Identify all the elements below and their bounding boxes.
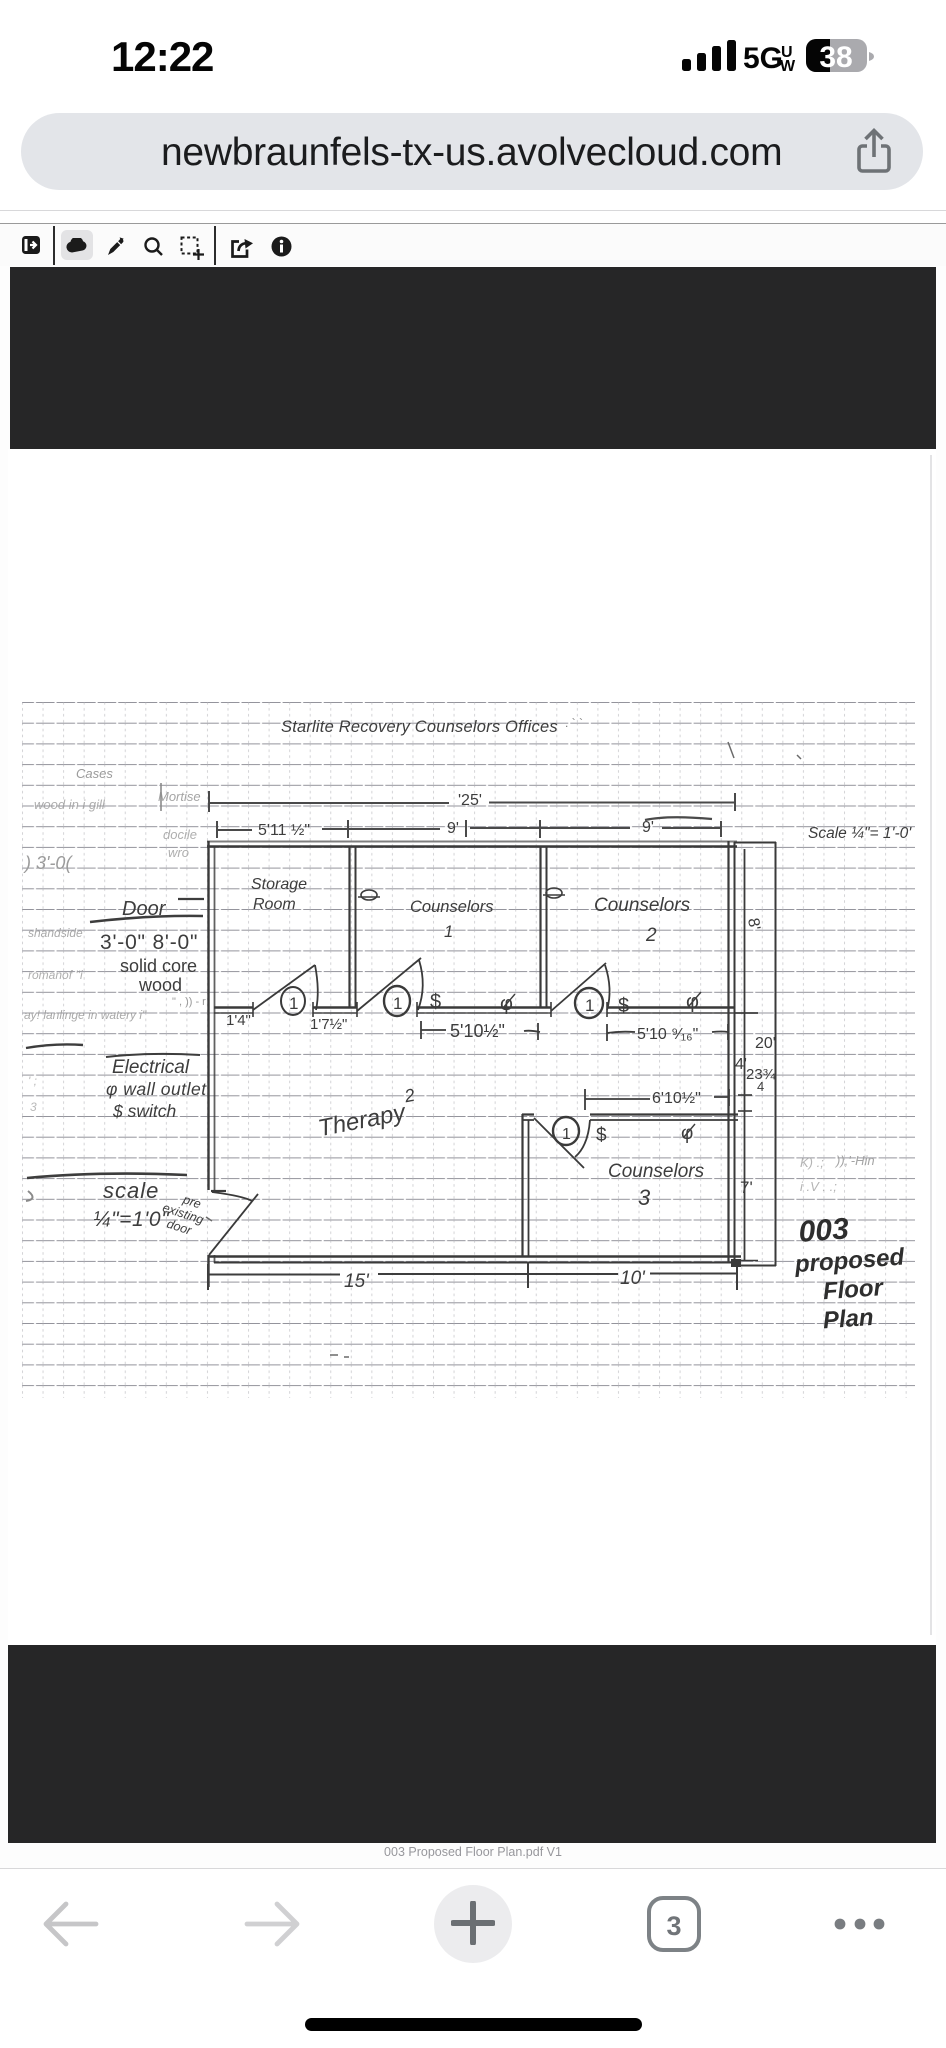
- svg-text:1'4": 1'4": [226, 1012, 251, 1029]
- svg-text:20': 20': [755, 1035, 776, 1052]
- svg-text:1: 1: [444, 923, 453, 941]
- svg-text:1: 1: [289, 994, 298, 1013]
- svg-text:$: $: [618, 995, 629, 1017]
- svg-text:5'10 ⁹⁄₁₆": 5'10 ⁹⁄₁₆": [637, 1026, 698, 1043]
- svg-text:5'11 ½": 5'11 ½": [258, 822, 310, 839]
- svg-text:Electrical: Electrical: [112, 1057, 190, 1078]
- svg-text:Counselors: Counselors: [608, 1161, 705, 1182]
- svg-text:" , )) - r: " , )) - r: [172, 996, 206, 1008]
- svg-text:38: 38: [819, 41, 852, 74]
- svg-text:Floor: Floor: [822, 1274, 885, 1305]
- svg-text:)),'-Hin: )),'-Hin: [834, 1153, 875, 1168]
- svg-text:$ switch: $ switch: [112, 1101, 176, 1121]
- svg-text:'25': '25': [458, 792, 482, 809]
- svg-text:$: $: [430, 991, 441, 1013]
- svg-text:φ wall outlet: φ wall outlet: [106, 1079, 207, 1099]
- svg-text:docile: docile: [163, 827, 197, 842]
- svg-text:2: 2: [645, 925, 657, 946]
- svg-text:i .V . .;: i .V . .;: [800, 1179, 837, 1194]
- svg-text:' ;: ' ;: [28, 1074, 37, 1088]
- svg-text:. ` `: . ` `: [565, 716, 583, 730]
- svg-text:Room: Room: [253, 896, 296, 913]
- svg-text:Counselors: Counselors: [594, 895, 691, 916]
- svg-text:3'-0" 8'-0": 3'-0" 8'-0": [100, 931, 198, 954]
- svg-text:15': 15': [344, 1271, 370, 1292]
- svg-text:6'10½": 6'10½": [652, 1090, 701, 1107]
- svg-text:$: $: [596, 1125, 607, 1146]
- svg-text:10': 10': [620, 1268, 646, 1289]
- svg-text:1: 1: [585, 996, 594, 1015]
- svg-text:ay! lanlinge in watery i": ay! lanlinge in watery i": [24, 1008, 147, 1022]
- svg-text:1'7½": 1'7½": [310, 1016, 347, 1033]
- svg-text:Mortise: Mortise: [158, 789, 201, 804]
- svg-text:Plan: Plan: [822, 1304, 874, 1334]
- svg-text:K) .;: K) .;: [800, 1155, 824, 1170]
- svg-text:9': 9': [447, 820, 459, 837]
- svg-text:W: W: [780, 58, 796, 75]
- svg-text:9': 9': [642, 819, 654, 836]
- svg-text:003: 003: [798, 1212, 851, 1248]
- svg-text:5'10½": 5'10½": [450, 1021, 505, 1041]
- svg-text:Starlite Recovery Counselors O: Starlite Recovery Counselors Offices: [281, 718, 558, 736]
- svg-text:romanof ''i: romanof ''i: [28, 968, 83, 982]
- svg-text:Storage: Storage: [251, 876, 307, 893]
- svg-text:Counselors: Counselors: [410, 898, 493, 916]
- svg-text:Scale ¼"= 1'-0': Scale ¼"= 1'-0': [808, 825, 912, 842]
- svg-text:solid core: solid core: [120, 956, 197, 976]
- svg-text:1: 1: [562, 1126, 571, 1143]
- svg-text:4: 4: [757, 1079, 764, 1094]
- svg-text:1: 1: [393, 994, 402, 1013]
- svg-text:3: 3: [638, 1185, 651, 1210]
- svg-text:7': 7': [740, 1178, 753, 1197]
- svg-text:scale: scale: [103, 1178, 159, 1203]
- svg-text:wro: wro: [168, 845, 189, 860]
- svg-text:wood: wood: [138, 975, 182, 995]
- svg-text:¼"=1'0": ¼"=1'0": [93, 1208, 170, 1231]
- svg-text:3: 3: [30, 1100, 37, 1114]
- svg-text:Cases: Cases: [76, 766, 113, 781]
- svg-text:) 3'-0(: ) 3'-0(: [23, 853, 73, 873]
- svg-text:wood in i gill: wood in i gill: [34, 797, 106, 812]
- svg-text:5G: 5G: [743, 42, 783, 75]
- svg-text:shandside: shandside: [28, 926, 83, 940]
